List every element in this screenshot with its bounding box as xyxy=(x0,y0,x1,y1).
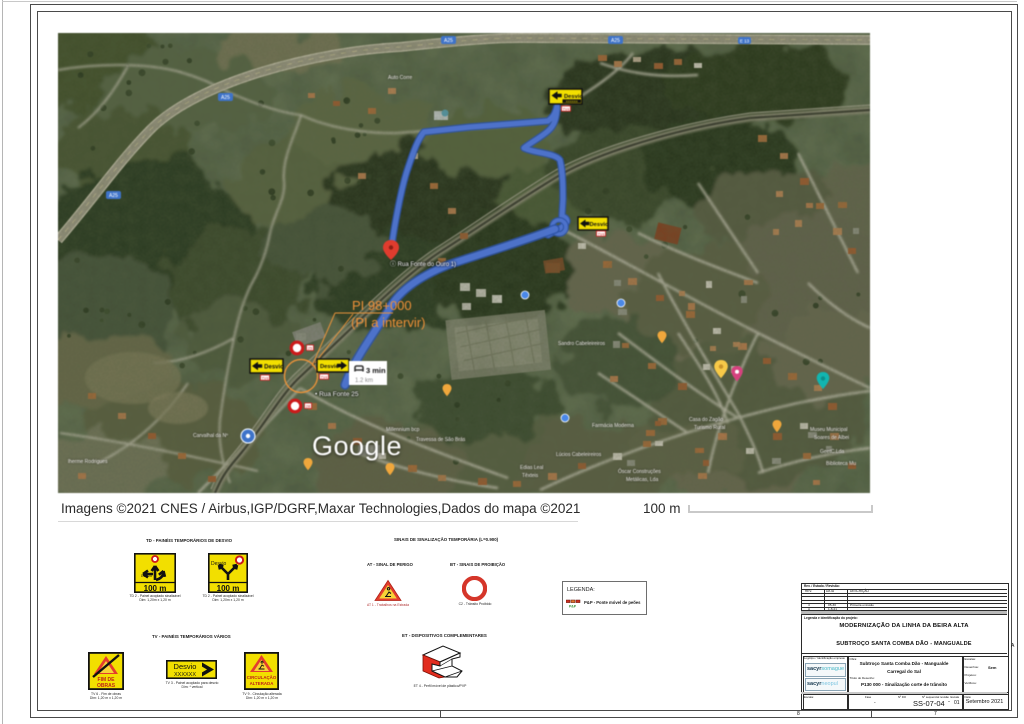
svg-text:Farmácia Moderna: Farmácia Moderna xyxy=(592,423,634,429)
svg-text:Museu Municipal: Museu Municipal xyxy=(810,427,848,433)
svg-text:Auto Corre: Auto Corre xyxy=(388,75,412,81)
svg-text:• Rua Fonte 25: • Rua Fonte 25 xyxy=(315,391,359,398)
svg-text:Google: Google xyxy=(312,431,402,461)
svg-text:Casa do Zagão: Casa do Zagão xyxy=(689,417,723,423)
svg-text:Sandro Cabeleireiros: Sandro Cabeleireiros xyxy=(558,341,605,347)
svg-text:Desvio: Desvio xyxy=(174,662,197,671)
svg-text:Desvio: Desvio xyxy=(589,222,608,228)
svg-text:TV4: TV4 xyxy=(321,375,328,379)
svg-text:A25: A25 xyxy=(109,193,118,199)
svg-text:Lúcios Cabeleireiros: Lúcios Cabeleireiros xyxy=(556,452,602,458)
svg-text:TV4: TV4 xyxy=(262,376,269,380)
svg-text:Desvio: Desvio xyxy=(320,364,339,370)
svg-text:GeetC.Lda: GeetC.Lda xyxy=(820,449,844,455)
svg-text:PI 98+000: PI 98+000 xyxy=(352,298,412,313)
svg-text:Edias Leal: Edias Leal xyxy=(520,465,543,471)
svg-text:P&P: P&P xyxy=(569,604,577,608)
svg-text:Turismo Rural: Turismo Rural xyxy=(694,425,725,431)
svg-text:ⓘ Rua Fonte do Ouro 1): ⓘ Rua Fonte do Ouro 1) xyxy=(390,260,456,268)
svg-text:3 min: 3 min xyxy=(366,366,386,375)
svg-text:Metálicas, Lda: Metálicas, Lda xyxy=(626,477,658,483)
svg-text:Biblioteca Mu: Biblioteca Mu xyxy=(826,461,856,467)
svg-text:Têxteis: Têxteis xyxy=(522,473,539,479)
svg-text:CIRCULAÇÃO: CIRCULAÇÃO xyxy=(247,675,277,680)
svg-text:1.2 km: 1.2 km xyxy=(355,378,373,384)
svg-text:TV4: TV4 xyxy=(563,107,570,111)
svg-text:OBRAS: OBRAS xyxy=(97,683,116,689)
svg-text:ALTERADA: ALTERADA xyxy=(250,681,275,686)
svg-text:Óscar Construções: Óscar Construções xyxy=(618,468,661,475)
svg-text:28: 28 xyxy=(306,404,311,409)
svg-text:A25: A25 xyxy=(611,38,620,44)
svg-text:(PI a intervir): (PI a intervir) xyxy=(351,315,425,330)
svg-text:Soares de Albei: Soares de Albei xyxy=(814,435,849,441)
svg-text:100 m: 100 m xyxy=(144,584,167,593)
svg-text:25: 25 xyxy=(308,346,313,351)
svg-text:100 m: 100 m xyxy=(217,584,240,593)
svg-text:A25: A25 xyxy=(444,38,453,44)
svg-text:Desvio: Desvio xyxy=(141,574,152,578)
svg-text:TV4: TV4 xyxy=(598,232,605,236)
svg-text:Desvio: Desvio xyxy=(211,561,227,567)
svg-text:XXXXXX: XXXXXX xyxy=(566,99,578,103)
svg-text:Travessa de São Brás: Travessa de São Brás xyxy=(416,437,466,443)
svg-text:E 13: E 13 xyxy=(740,39,750,44)
svg-text:A25: A25 xyxy=(221,95,230,101)
svg-text:Carvalhal da Nº: Carvalhal da Nº xyxy=(193,433,228,439)
svg-text:Desvio: Desvio xyxy=(264,365,284,371)
svg-text:lherme Rodrigues: lherme Rodrigues xyxy=(68,459,108,465)
svg-text:XXXXXX: XXXXXX xyxy=(174,672,196,678)
